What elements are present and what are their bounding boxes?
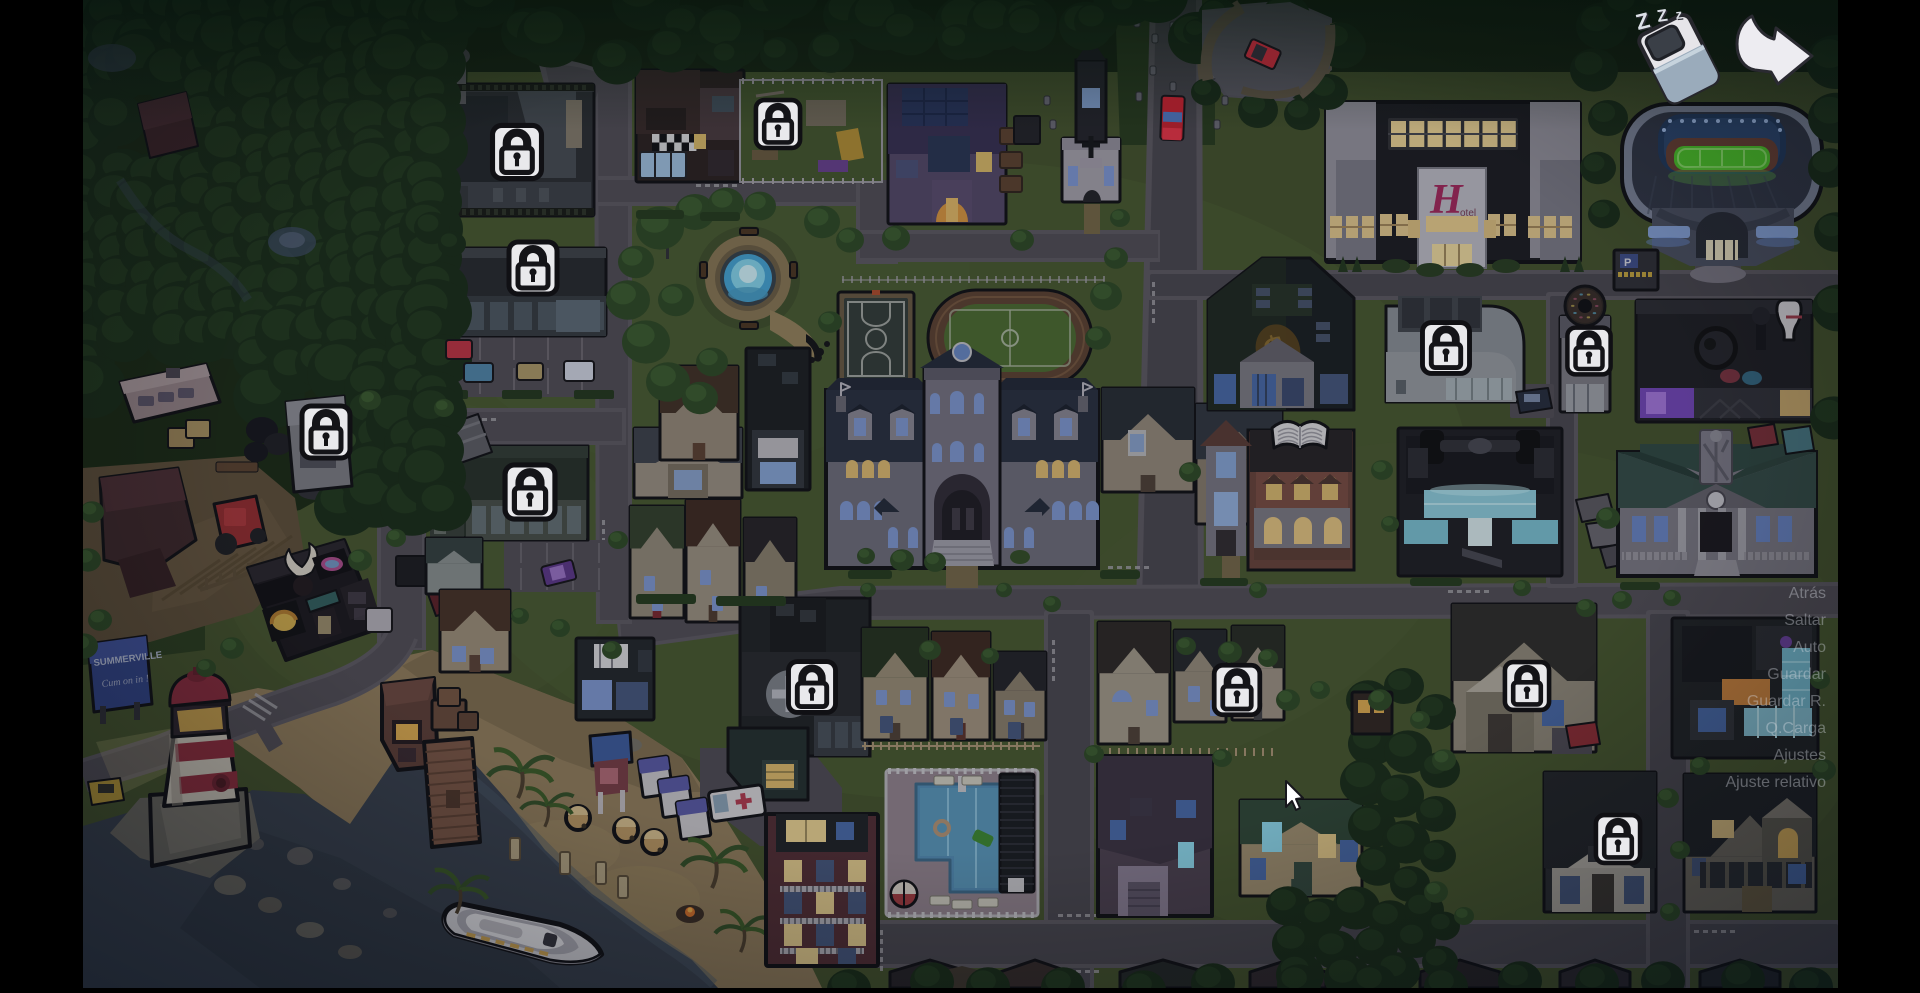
svg-text:Atrás: Atrás	[1789, 585, 1826, 602]
svg-text:Auto: Auto	[1793, 639, 1826, 656]
svg-text:Ajuste relativo: Ajuste relativo	[1726, 774, 1827, 791]
svg-text:Guardar: Guardar	[1767, 666, 1826, 683]
svg-text:Q.Carga: Q.Carga	[1766, 720, 1827, 737]
svg-text:Ajustes: Ajustes	[1774, 747, 1826, 764]
svg-text:Saltar: Saltar	[1784, 612, 1826, 629]
svg-text:Guardar R.: Guardar R.	[1747, 693, 1826, 710]
